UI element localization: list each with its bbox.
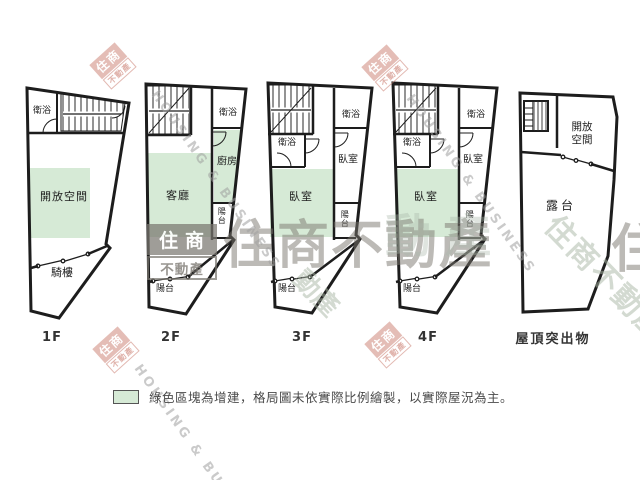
- floorplan-4f: [393, 83, 497, 313]
- sliding-door-icon-3f: [273, 275, 312, 283]
- floorplan-roof: [520, 93, 617, 312]
- addition-area-1f: [30, 168, 90, 238]
- floorplan-diagram: [0, 0, 640, 480]
- addition-area-4f: [395, 169, 459, 237]
- door-arc-icon: [277, 153, 291, 167]
- door-arc-icon: [334, 133, 348, 147]
- door-arc-icon: [402, 153, 416, 167]
- door-arc-icon: [459, 133, 473, 147]
- door-arc-icon: [305, 139, 319, 153]
- floorplan-1f: [27, 88, 129, 318]
- sliding-door-icon-roof: [561, 155, 593, 166]
- door-arc-icon: [430, 139, 444, 153]
- floorplan-image: 衛浴 開放空間 騎樓 衛浴 廚房 客廳 陽台 陽台 衛浴 衛浴 臥室 臥室 陽台…: [0, 0, 640, 480]
- sliding-door-icon-2f: [151, 275, 190, 283]
- sliding-door-icon-4f: [398, 275, 437, 283]
- addition-area-3f: [270, 169, 334, 237]
- floorplan-2f: [146, 84, 246, 314]
- sliding-door-icon-1f: [36, 252, 90, 268]
- addition-area-2f-living: [148, 153, 211, 237]
- door-arc-icon: [43, 119, 57, 133]
- floorplan-3f: [268, 83, 372, 313]
- stairs-icon-roof: [524, 101, 548, 131]
